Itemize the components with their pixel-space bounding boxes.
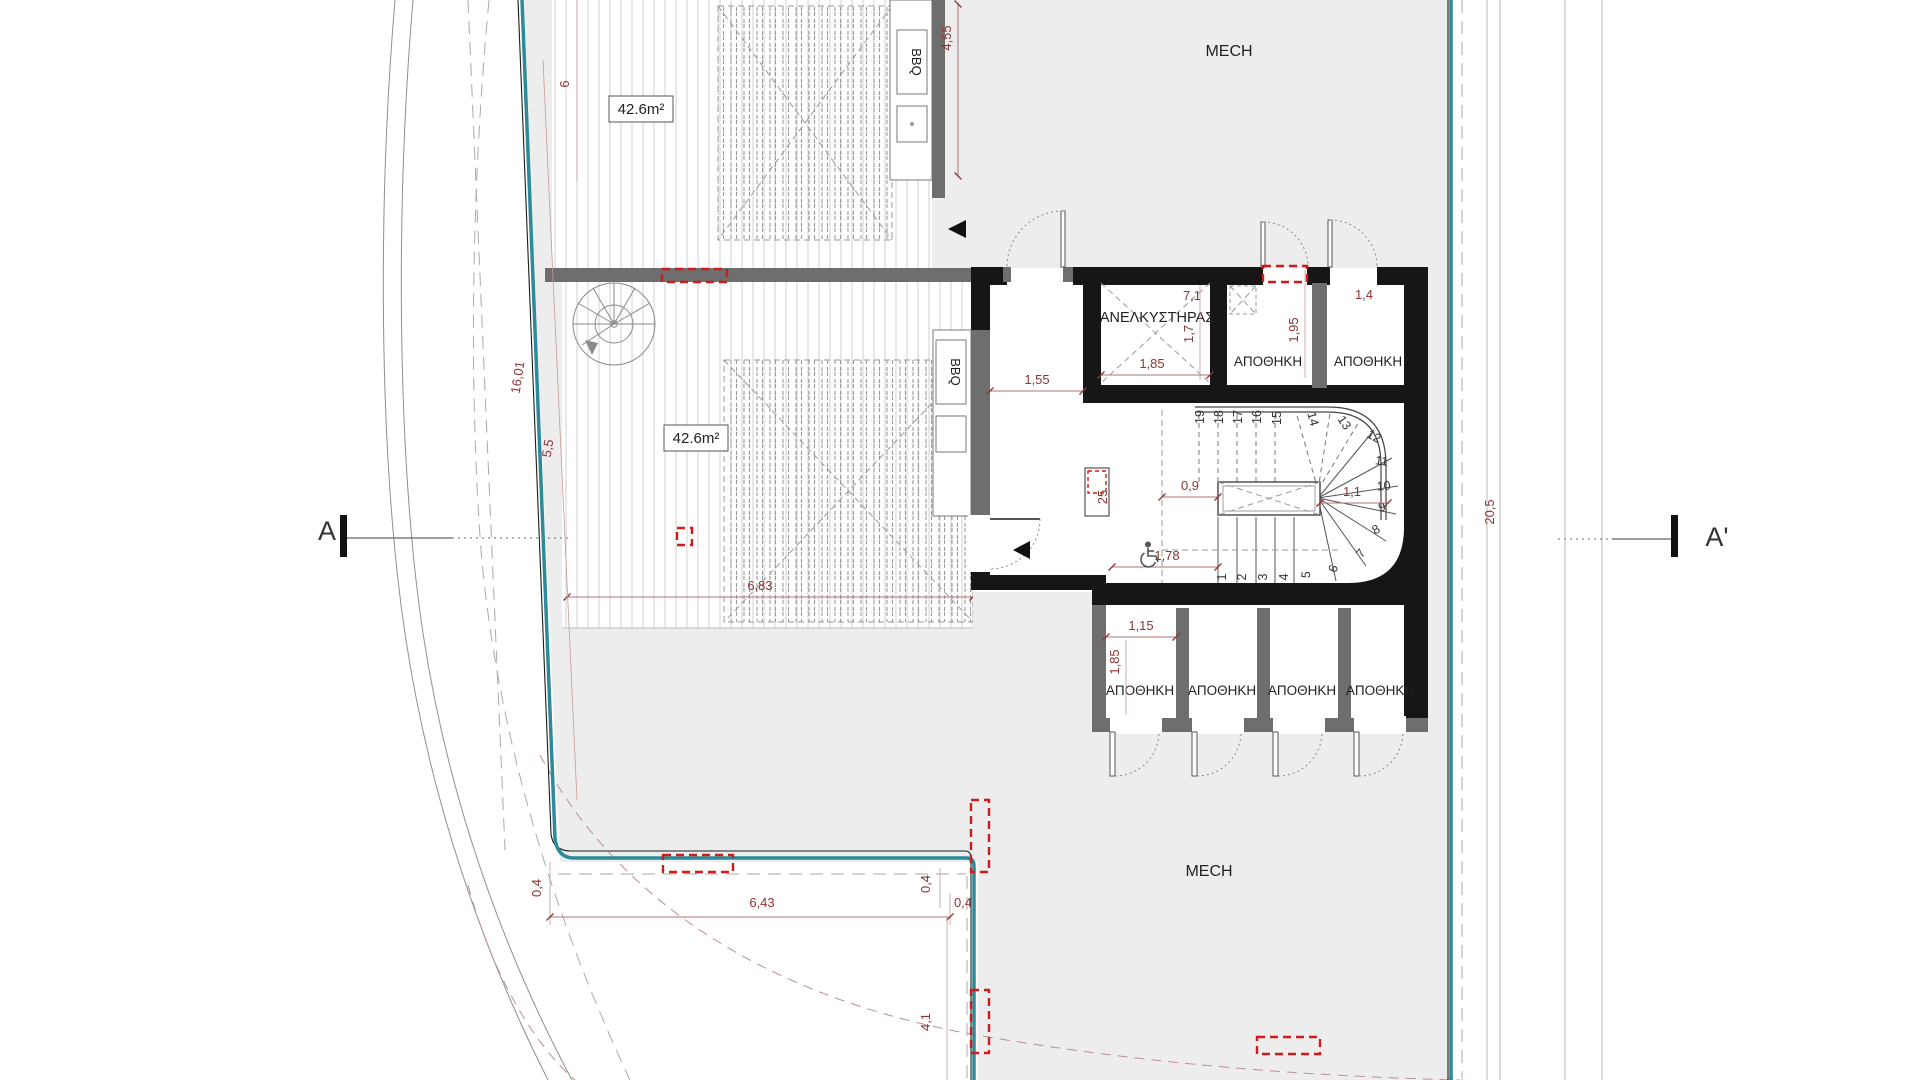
dim-shaft: 25: [1095, 490, 1110, 504]
wall-storerow-west: [1092, 605, 1106, 732]
storage-top-1-label: ΑΠΟΘΗΚΗ: [1234, 354, 1302, 369]
dim-elev-top: 7,1: [1183, 288, 1201, 303]
dim-storage-w: 1,4: [1355, 287, 1373, 302]
dim-terrace-height: 4,55: [939, 25, 954, 50]
stair-number: 5: [1299, 571, 1314, 579]
dim-vestibule-w: 1,55: [1024, 372, 1049, 387]
stair-number: 4: [1277, 573, 1291, 580]
sink-mid: [936, 416, 966, 452]
wall-south-vestibule: [971, 575, 1106, 590]
wall-west-top: [971, 267, 990, 330]
elevator-label: ΑΝΕΛΚΥΣΤΗΡΑΣ: [1100, 310, 1214, 326]
bbq-label-top: BBQ: [909, 48, 924, 75]
stair-number: 2: [1235, 573, 1249, 580]
area-label-top: 42.6m²: [618, 101, 665, 118]
section-a-prime-bar: [1671, 515, 1678, 557]
stair-number: 18: [1212, 410, 1226, 424]
wall-south-stairhall: [1092, 583, 1352, 605]
dim-elev-h: 1,7: [1181, 325, 1196, 343]
stair-number: 19: [1193, 410, 1207, 424]
stair-landing: [1218, 482, 1320, 515]
shaft-box: 25: [1085, 468, 1110, 516]
stair-number: 17: [1231, 410, 1245, 424]
bbq-label-mid: BBQ: [948, 358, 963, 385]
dim-stair-top: 0,9: [1181, 478, 1199, 493]
stair-number: 16: [1250, 410, 1264, 424]
section-a-label: A: [318, 516, 336, 546]
storage-top-2-label: ΑΠΟΘΗΚΗ: [1334, 354, 1402, 369]
dim-bottom-width: 6,43: [749, 895, 774, 910]
wall-east: [1404, 267, 1428, 730]
mech-top-label: MECH: [1205, 43, 1252, 60]
dim-site-right: 20,5: [1482, 499, 1497, 524]
stair-number: 3: [1256, 573, 1270, 580]
floor-plan-canvas: 20,5 BBQ 42.6m² 4,55 6: [0, 0, 1920, 1080]
stair-number: 15: [1270, 411, 1284, 425]
pergola-hatch-top: [718, 6, 892, 240]
stair-number: 10: [1376, 478, 1391, 493]
area-label-mid: 42.6m²: [673, 430, 720, 447]
sink-dot: [910, 122, 914, 126]
stair-number: 11: [1374, 453, 1389, 469]
stair-number: 1: [1215, 573, 1229, 580]
floor-plan-drawing: 20,5 BBQ 42.6m² 4,55 6: [0, 0, 1920, 1080]
dim-terrace-width: 6,83: [747, 578, 772, 593]
storage-bottom-1-label: ΑΠΟΘΗΚΗ: [1106, 683, 1174, 698]
storage-bottom-2-label: ΑΠΟΘΗΚΗ: [1188, 683, 1256, 698]
dim-storage-h: 1,95: [1286, 317, 1301, 342]
top-terrace: BBQ 42.6m² 4,55 6: [552, 0, 958, 268]
dim-offset-right: 0,4: [954, 895, 972, 910]
storage-bottom-3-label: ΑΠΟΘΗΚΗ: [1268, 683, 1336, 698]
wall-west-mid: [971, 330, 990, 515]
section-a-bar: [340, 515, 347, 557]
dim-bottom-right-height: 4,1: [918, 1013, 933, 1031]
dim-offset-v: 0,4: [918, 875, 933, 893]
dim-pergola: 6: [557, 80, 572, 87]
mech-bottom-label: MECH: [1185, 863, 1232, 880]
wall-terrace-separator: [545, 268, 973, 282]
building-core: ΑΝΕΛΚΥΣΤΗΡΑΣ 7,1 1,7 1,85 1,55 ΑΠΟΘΗΚΗ 1…: [948, 211, 1428, 776]
section-a-prime-label: A': [1705, 522, 1728, 552]
dim-elev-w: 1,85: [1139, 356, 1164, 371]
dim-stair-right: 1,1: [1343, 484, 1361, 499]
dim-store-h: 1,85: [1107, 649, 1122, 674]
storage-bottom-4-label: ΑΠΟΘΗΚΗ: [1346, 683, 1414, 698]
dim-store-w: 1,15: [1128, 618, 1153, 633]
dim-offset-left: 0,4: [529, 879, 544, 897]
